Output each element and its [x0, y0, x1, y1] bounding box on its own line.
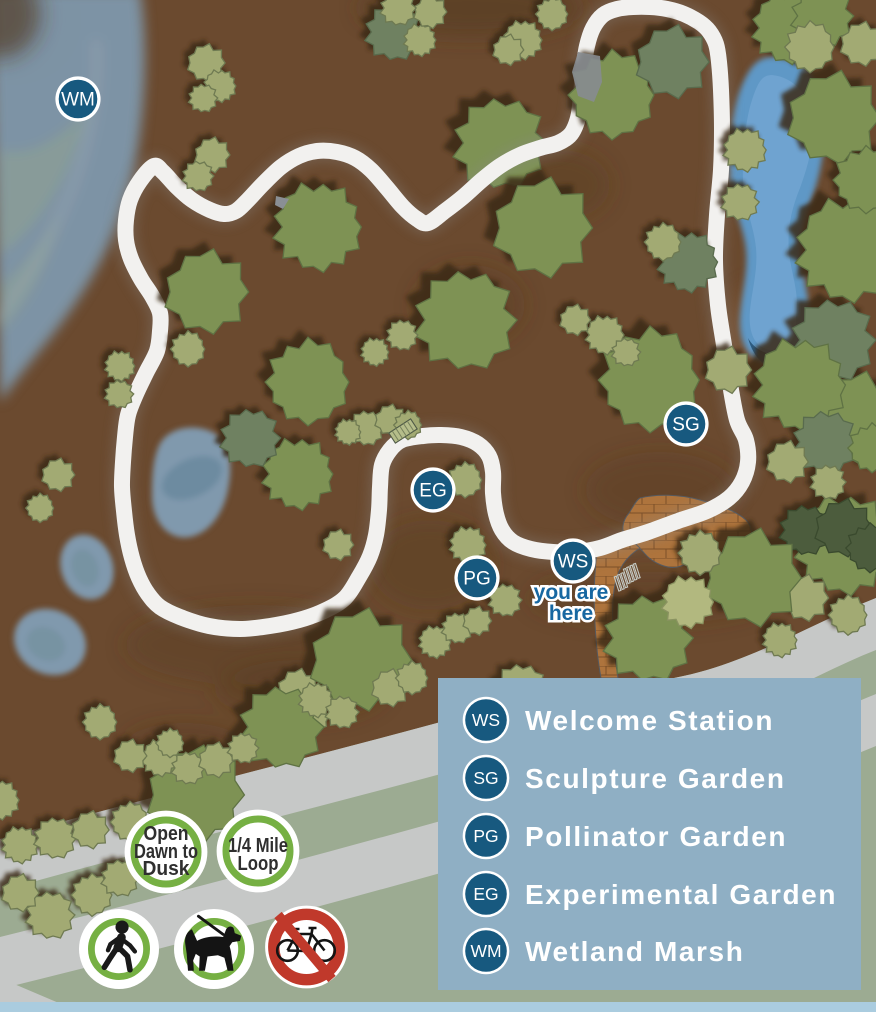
svg-text:PG: PG: [463, 569, 490, 590]
svg-text:Welcome Station: Welcome Station: [525, 705, 774, 736]
svg-text:EG: EG: [473, 884, 498, 904]
svg-text:WS: WS: [558, 552, 589, 573]
svg-text:Dusk: Dusk: [143, 858, 191, 880]
svg-text:Loop: Loop: [238, 853, 279, 875]
svg-text:WS: WS: [472, 710, 500, 730]
svg-text:WM: WM: [470, 941, 501, 961]
svg-text:Sculpture Garden: Sculpture Garden: [525, 763, 786, 794]
svg-text:Experimental Garden: Experimental Garden: [525, 879, 837, 910]
svg-text:SG: SG: [672, 415, 699, 436]
svg-text:Wetland Marsh: Wetland Marsh: [525, 936, 744, 967]
svg-text:SG: SG: [473, 768, 498, 788]
svg-text:Pollinator Garden: Pollinator Garden: [525, 821, 787, 852]
svg-text:WM: WM: [61, 90, 95, 111]
svg-text:EG: EG: [419, 481, 446, 502]
svg-text:here: here: [549, 602, 593, 625]
svg-text:PG: PG: [473, 826, 498, 846]
svg-text:you are: you are: [534, 581, 609, 604]
